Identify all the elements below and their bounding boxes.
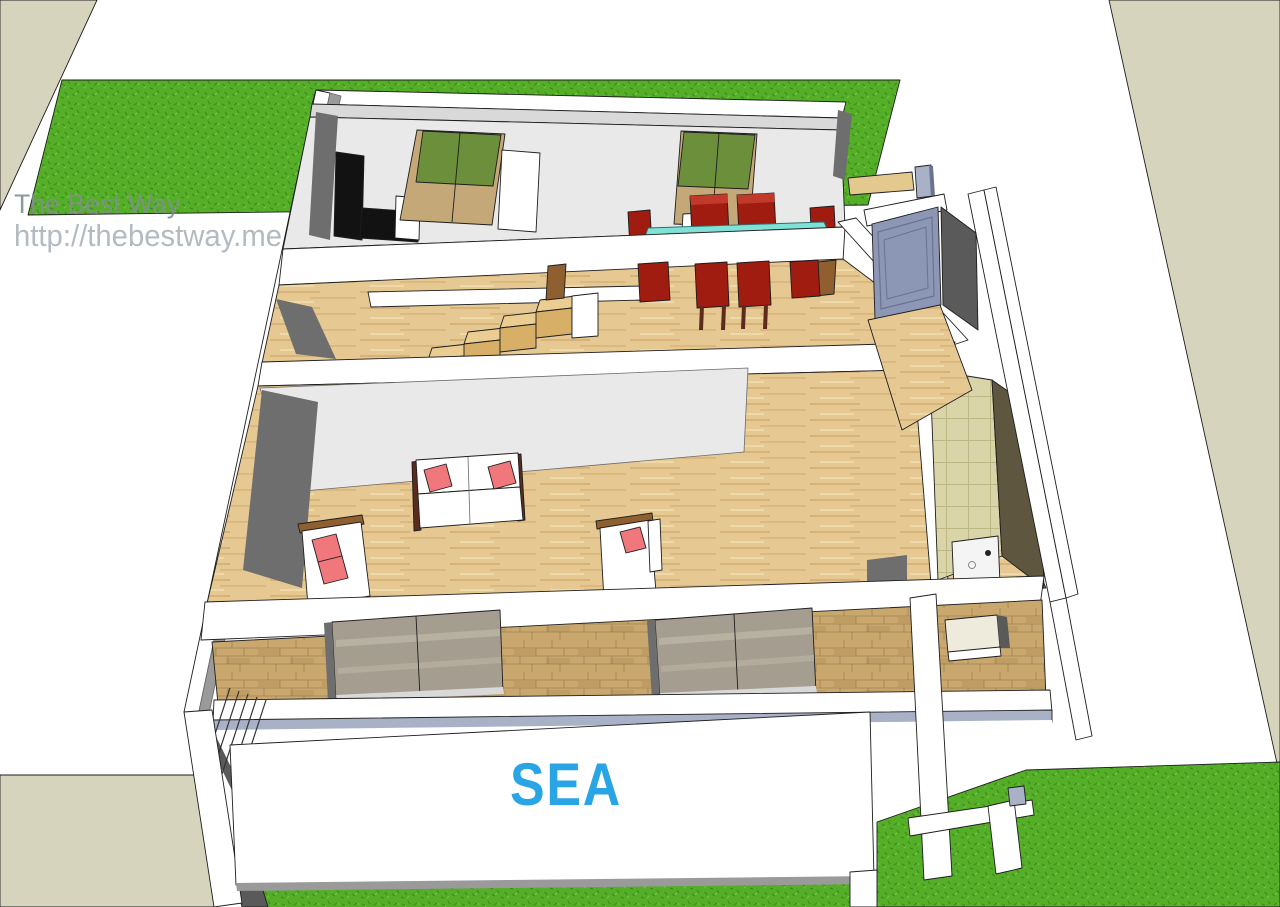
bed-left [298, 515, 370, 606]
kitchen-tall-cabinet [334, 152, 364, 240]
floorplan-3d-render: The Best Way http://thebestway.me SEA [0, 0, 1280, 907]
glass-door-2 [647, 608, 817, 700]
bed-right [596, 513, 662, 600]
closet-white [498, 150, 540, 232]
glass-door-1 [324, 610, 504, 702]
table-leg-left [546, 264, 566, 300]
watermark-line-2: http://thebestway.me [14, 218, 282, 253]
stair-top-wall [572, 293, 598, 338]
bathroom-shadow [867, 555, 907, 584]
sea-label: SEA [510, 751, 622, 818]
bed-right-nightstand [648, 519, 662, 572]
post-bottom-right [850, 870, 877, 907]
terrace-deck-bottom-left [0, 775, 218, 907]
wardrobe-left-doors [416, 131, 501, 186]
sink-faucet [985, 550, 991, 556]
watermark-line-1: The Best Way [14, 189, 180, 219]
stone-window [945, 615, 1010, 661]
sofa [412, 453, 525, 531]
blue-box-right [1008, 786, 1026, 806]
